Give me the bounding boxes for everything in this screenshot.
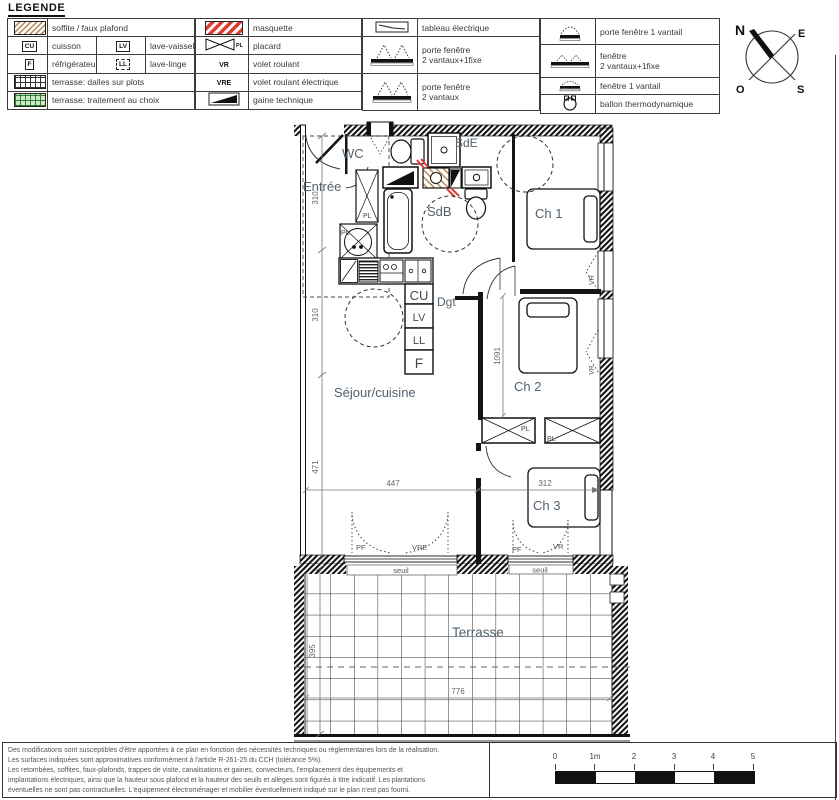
window-ch1-top-icon [598, 143, 613, 191]
vr-label: VR [589, 275, 596, 285]
dim-447: 447 [386, 479, 400, 488]
bed-ch2-icon [519, 298, 577, 373]
dim-ch2: 1091 [493, 347, 502, 365]
scale-tick [674, 764, 675, 770]
scale-tick [753, 764, 754, 770]
dim-776: 776 [451, 687, 465, 696]
washbasin-icon [462, 167, 491, 188]
dim-312: 312 [538, 479, 552, 488]
room-label-wc: WC [342, 146, 364, 161]
scale-segment [596, 772, 636, 783]
soffite-basin-icon [423, 168, 449, 188]
room-label-dgt: Dgt [437, 295, 456, 309]
room-label-ch3: Ch 3 [533, 498, 560, 513]
room-label-sdb: SdB [427, 204, 452, 219]
floor-plan: seuil seuil PL PL PL PL [0, 0, 839, 742]
pl-label: PL [547, 436, 556, 443]
scale-tick-label: 1m [585, 752, 605, 761]
disclaimer-line: Les retombées, soffites, faux-plafonds, … [8, 766, 486, 776]
dim-395: 395 [308, 644, 317, 658]
scale-bar [555, 771, 755, 784]
disclaimer-line: Des modifications sont susceptibles d'êt… [8, 746, 486, 756]
scale-tick [555, 764, 556, 770]
scale-tick-label: 5 [743, 752, 763, 761]
kitchen-counter-icon [339, 258, 433, 284]
pf-label: PF [512, 545, 522, 554]
scale-tick [634, 764, 635, 770]
room-label-sde: SdE [455, 136, 478, 150]
scale-segment [675, 772, 715, 783]
window-ch2-icon [598, 299, 613, 358]
terrace [294, 566, 630, 741]
pf-label: PF [356, 543, 366, 552]
scale-segment [714, 772, 754, 783]
seuil-label: seuil [532, 566, 548, 575]
scale-segment [556, 772, 596, 783]
scale-tick-label: 4 [703, 752, 723, 761]
vr-label: VR [553, 542, 564, 551]
bathtub-icon [384, 189, 412, 253]
scale-tick [594, 764, 595, 770]
dim-310-kitchen: 310 [311, 308, 320, 322]
entrance-opening [306, 124, 344, 137]
floorplan-sheet: { "legend": { "title": "LEGENDE", "group… [0, 0, 839, 800]
gaine-wedge-icon [450, 169, 461, 188]
pl-label: PL [521, 426, 530, 433]
scale-tick [713, 764, 714, 770]
gaine-technique-box-icon [383, 167, 418, 188]
porte-fenetre-ch3-icon [508, 556, 573, 562]
room-label-terrasse: Terrasse [452, 625, 504, 640]
disclaimer-line: Les surfaces indiquées sont approximativ… [8, 756, 486, 766]
ll-label: LL [413, 335, 425, 347]
seuil-label: seuil [393, 566, 409, 575]
room-label-ch2: Ch 2 [514, 379, 541, 394]
scale-tick-label: 3 [664, 752, 684, 761]
pl-label: PL [363, 213, 372, 220]
disclaimer-line: éventuelles ne sont pas contractuelles. … [8, 786, 486, 796]
toilet-wc-icon [391, 139, 424, 164]
lv-label: LV [413, 312, 426, 324]
dim-471: 471 [311, 460, 320, 474]
footer-divider [489, 742, 490, 797]
window-ch1-icon [598, 251, 613, 291]
vr-label: VR [589, 365, 596, 375]
toilet-sde-icon [465, 189, 487, 219]
scale-segment [635, 772, 675, 783]
room-label-sejour: Séjour/cuisine [334, 385, 416, 400]
disclaimer-line: implantations électriques, ainsi que la … [8, 776, 486, 786]
f-label: F [415, 355, 424, 371]
vre-label: VRE [412, 543, 427, 552]
pl-label: PL [341, 230, 350, 237]
cu-label: CU [410, 288, 429, 303]
room-label-entree: Entrée [303, 179, 341, 194]
room-label-ch1: Ch 1 [535, 206, 562, 221]
scale-tick-label: 0 [545, 752, 565, 761]
scale-tick-label: 2 [624, 752, 644, 761]
porte-fenetre-sejour-icon [344, 556, 457, 562]
